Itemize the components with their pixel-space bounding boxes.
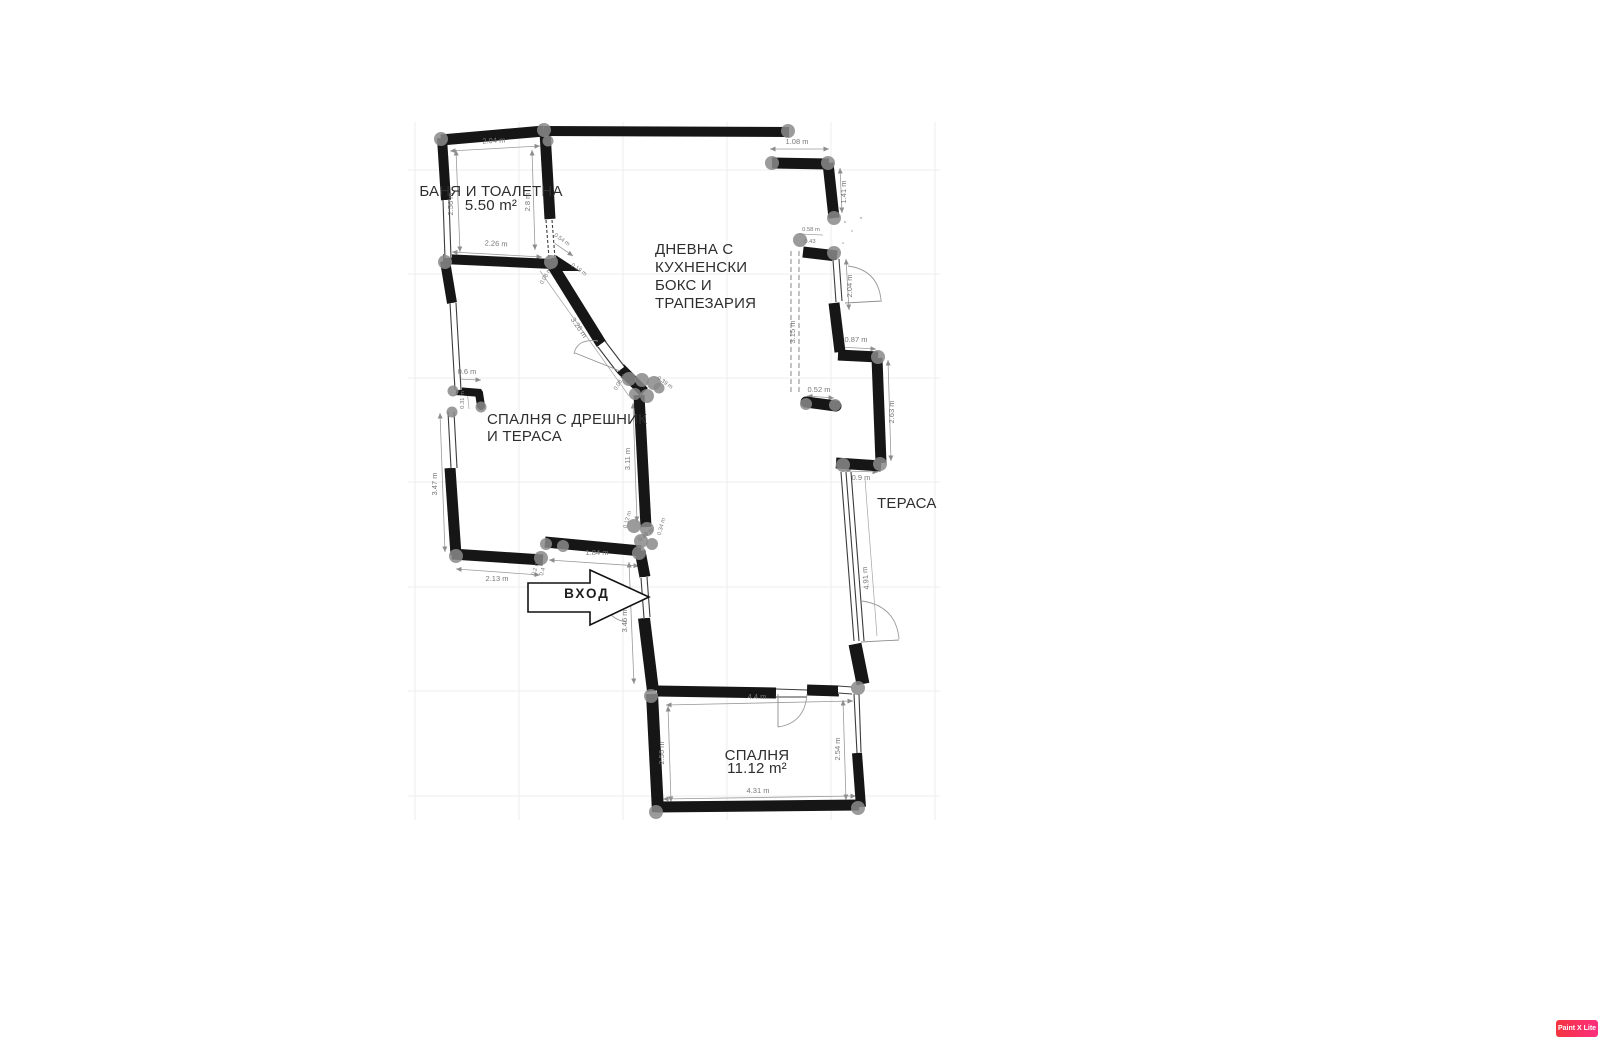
dimension-label: 4.4 m xyxy=(748,692,767,701)
room-label-terrace: ТЕРАСА xyxy=(877,495,937,512)
room-area-bathroom: 5.50 m² xyxy=(465,197,517,214)
dimension-label: 2.26 m xyxy=(484,238,507,248)
dimension-label: 1.41 m xyxy=(839,181,848,204)
room-label-living-3: БОКС И xyxy=(655,277,712,294)
room-label-bedroom-left-1: СПАЛНЯ С ДРЕШНИК xyxy=(487,411,647,428)
dimension-label: 0.08 m xyxy=(539,267,553,285)
walls xyxy=(441,131,881,812)
room-label-living-1: ДНЕВНА С xyxy=(655,241,733,258)
dimension-label: 0.6 m xyxy=(458,367,477,376)
dimension-label: 2.54 m xyxy=(833,738,842,761)
floor-plan: ВХОД 2.04 m 2.56 m 2.8 m 2.26 m 0.54 m 0… xyxy=(0,0,1600,1043)
room-label-living-4: ТРАПЕЗАРИЯ xyxy=(655,295,756,312)
dimension-label: 2.56 m xyxy=(657,742,666,765)
paint-x-lite-watermark: Paint X Lite xyxy=(1556,1020,1598,1037)
dimension-label: 1.08 m xyxy=(786,137,809,146)
dimension-label: 0.4 xyxy=(539,566,547,576)
dimension-label: 0.54 m xyxy=(553,233,571,248)
dimension-label: 3.46 m xyxy=(620,610,629,633)
dimension-label: 0.31 m xyxy=(460,391,466,409)
dimension-label: 3.15 m xyxy=(788,321,797,344)
dimension-label: 0.43 xyxy=(804,239,815,245)
room-label-bedroom-left-2: И ТЕРАСА xyxy=(487,428,562,445)
dimension-label: 2.63 m xyxy=(887,401,896,424)
entrance-label: ВХОД xyxy=(564,586,610,601)
canvas: ВХОД 2.04 m 2.56 m 2.8 m 2.26 m 0.54 m 0… xyxy=(0,0,1600,1043)
dimension-label: 4.91 m xyxy=(860,566,871,590)
dimension-label: 0.34 m xyxy=(657,517,667,536)
dimension-label: 1.84 m xyxy=(586,548,609,557)
dimension-label: 2.13 m xyxy=(486,574,509,583)
room-label-living-2: КУХНЕНСКИ xyxy=(655,259,747,276)
dimension-label: 0.87 m xyxy=(845,335,868,344)
dimension-label: 2.04 m xyxy=(845,275,854,298)
dimension-label: 0.58 m xyxy=(802,227,820,233)
dimension-label: 0.9 m xyxy=(852,473,871,482)
dimension-label: 4.31 m xyxy=(747,786,770,795)
room-area-bedroom-bottom: 11.12 m² xyxy=(727,760,787,777)
dimension-label: 2.04 m xyxy=(482,135,505,145)
dimension-label: 3.47 m xyxy=(430,473,439,496)
dimension-label: 0.52 m xyxy=(808,385,831,394)
dimension-label: 3.11 m xyxy=(623,448,632,470)
